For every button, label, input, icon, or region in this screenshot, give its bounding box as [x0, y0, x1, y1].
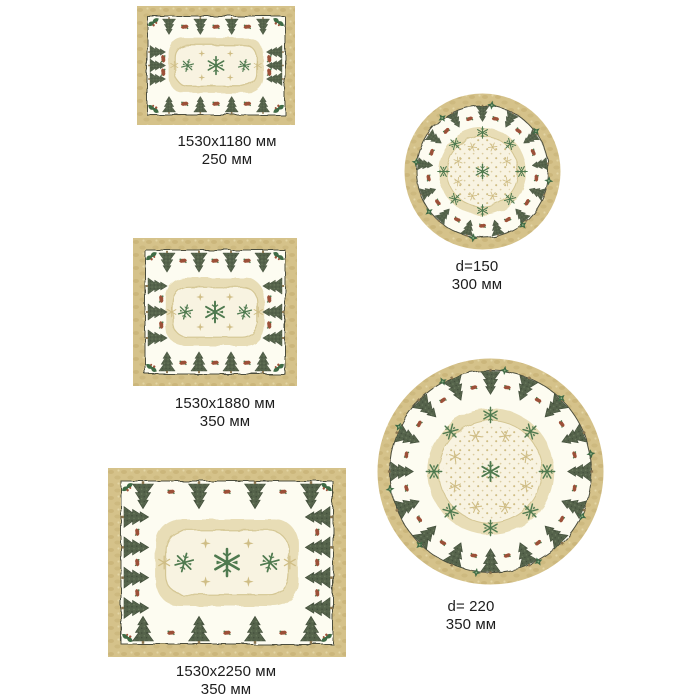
tablecloth-round-small-image — [404, 93, 561, 250]
size-label-rect-small: 1530x1180 мм 250 мм — [117, 133, 337, 169]
dimensions-text: d=150 — [367, 258, 587, 276]
height-text: 250 мм — [117, 151, 337, 169]
catalog-page: 1530x1180 мм 250 мм d=150 300 мм 1530x18… — [0, 0, 700, 700]
tablecloth-round-large-image — [377, 358, 604, 585]
size-label-rect-medium: 1530x1880 мм 350 мм — [115, 395, 335, 431]
height-text: 350 мм — [115, 413, 335, 431]
size-label-round-large: d= 220 350 мм — [361, 598, 581, 634]
dimensions-text: 1530x1880 мм — [115, 395, 335, 413]
dimensions-text: 1530x2250 мм — [116, 663, 336, 681]
tablecloth-rect-small-image — [137, 6, 295, 125]
dimensions-text: d= 220 — [361, 598, 581, 616]
height-text: 350 мм — [361, 616, 581, 634]
tablecloth-rect-large-image — [108, 468, 346, 657]
height-text: 350 мм — [116, 681, 336, 699]
tablecloth-rect-medium-image — [133, 238, 297, 386]
size-label-round-small: d=150 300 мм — [367, 258, 587, 294]
dimensions-text: 1530x1180 мм — [117, 133, 337, 151]
size-label-rect-large: 1530x2250 мм 350 мм — [116, 663, 336, 699]
height-text: 300 мм — [367, 276, 587, 294]
